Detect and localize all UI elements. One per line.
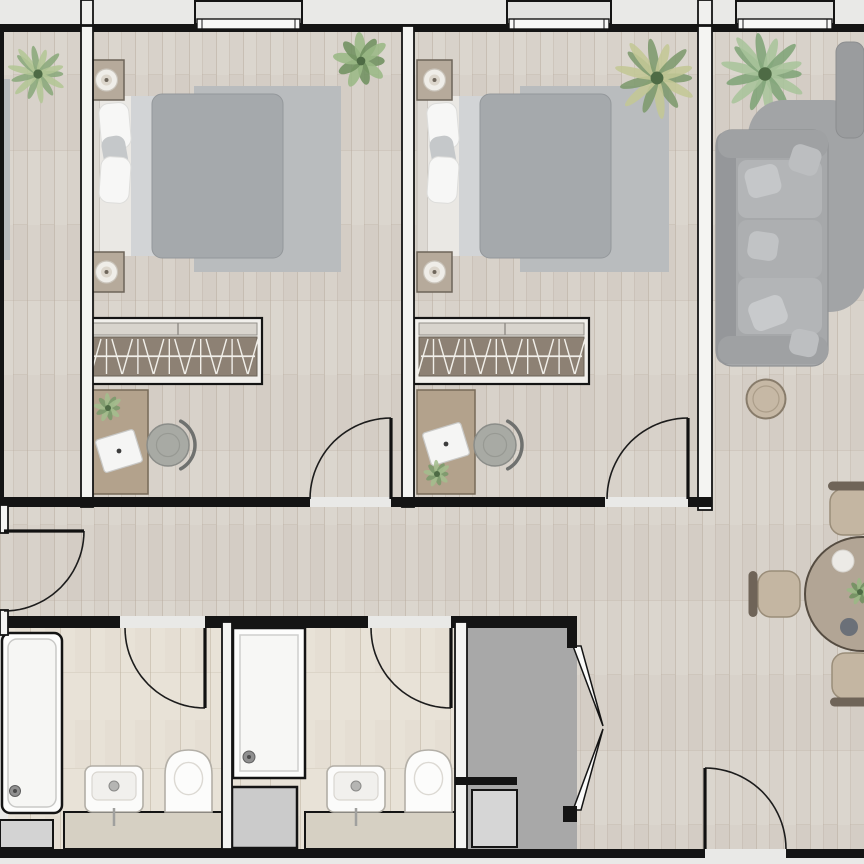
desk-1-plant-core bbox=[105, 405, 111, 411]
shower-head-dot bbox=[247, 755, 251, 759]
lamp-1b-dot bbox=[105, 270, 109, 274]
wall-bedroom1-bottom-right bbox=[391, 497, 414, 507]
bedroom-2-plant-core bbox=[651, 72, 664, 85]
wall-hall-bottom-a bbox=[8, 616, 120, 628]
dining-chair-bottom-backrest bbox=[830, 698, 864, 707]
dining-chair-top bbox=[828, 482, 864, 536]
wall-hall-left-lower bbox=[0, 610, 8, 635]
bathtub-cabinet bbox=[0, 820, 53, 848]
dining-chair-bottom bbox=[830, 653, 864, 707]
window-bedroom-1-sill bbox=[197, 19, 300, 29]
wall-closet-appliance-divider bbox=[455, 777, 517, 785]
laptop-2-logo bbox=[444, 442, 449, 447]
wall-hall-bottom-c bbox=[451, 616, 577, 628]
wall-bedroom2-living bbox=[698, 26, 712, 510]
wall-stub-top-b bbox=[698, 0, 712, 25]
bedroom-1-plant-core bbox=[357, 57, 366, 66]
lamp-2a-dot bbox=[433, 78, 437, 82]
wall-exterior-left bbox=[0, 24, 4, 508]
toilet-1 bbox=[165, 750, 212, 812]
wall-hall-left-upper bbox=[0, 505, 8, 533]
bed-1-duvet bbox=[152, 94, 283, 258]
bedroom-0-plant-core bbox=[33, 69, 42, 78]
wardrobe-2 bbox=[414, 318, 589, 384]
desk-2-plant-core bbox=[434, 471, 440, 477]
sink-2-faucet bbox=[351, 781, 361, 791]
wall-bedroom0-bedroom1 bbox=[81, 26, 93, 507]
wall-closet-stub-top bbox=[567, 618, 577, 648]
side-table bbox=[747, 380, 786, 419]
bed-1-pillow-b bbox=[98, 156, 131, 204]
sofa-chaise-corner bbox=[836, 42, 864, 138]
window-living-room-sill bbox=[738, 19, 832, 29]
floor-plan-svg bbox=[0, 0, 864, 864]
dining-chair-bottom-seat bbox=[832, 653, 864, 699]
wall-bathroom-divider-2 bbox=[455, 622, 467, 849]
wall-bedroom1-bedroom2 bbox=[402, 26, 414, 507]
bathroom-1-counter bbox=[64, 812, 222, 849]
desk-chair-2 bbox=[474, 421, 522, 469]
washing-machine bbox=[232, 787, 297, 848]
desk-chair-1 bbox=[147, 421, 195, 469]
wall-bedroom0-bottom bbox=[0, 497, 81, 507]
closet-appliance bbox=[472, 790, 517, 847]
lamp-2b-dot bbox=[433, 270, 437, 274]
floor-plan-stage bbox=[0, 0, 864, 864]
window-bedroom-1 bbox=[195, 1, 302, 29]
dining-table-plant-core bbox=[857, 589, 863, 595]
sofa-backrest bbox=[716, 132, 736, 364]
wall-exterior-bottom-left bbox=[0, 849, 705, 858]
window-bedroom-2 bbox=[507, 1, 611, 29]
dining-chair-top-backrest bbox=[828, 482, 864, 491]
sofa-pillow-3 bbox=[746, 230, 780, 262]
window-living-room bbox=[736, 1, 834, 29]
wall-closet-stub-bottom bbox=[563, 806, 577, 822]
wall-exterior-bottom-right bbox=[786, 849, 864, 858]
wall-bedroom1-bottom-left bbox=[81, 497, 310, 507]
wall-bedroom2-bottom-right bbox=[688, 497, 712, 507]
lamp-1a-dot bbox=[105, 78, 109, 82]
dining-chair-left bbox=[749, 571, 801, 617]
hallway-floor bbox=[0, 507, 712, 616]
bed-2-headboard bbox=[417, 96, 428, 256]
bathroom-2-counter bbox=[305, 812, 455, 849]
corridor-floor bbox=[577, 616, 712, 849]
dining-bowl bbox=[840, 618, 858, 636]
wall-exterior-top bbox=[0, 24, 864, 32]
wardrobe-2-shelf bbox=[419, 323, 584, 335]
window-bedroom-2-sill bbox=[509, 19, 609, 29]
desk-chair-2-seat bbox=[474, 424, 516, 466]
wardrobe-1-shelf bbox=[92, 323, 257, 335]
bathtub-faucet-dot bbox=[13, 789, 17, 793]
dining-chair-left-seat bbox=[758, 571, 800, 617]
living-room-plant-core bbox=[758, 67, 771, 80]
dining-plate bbox=[832, 550, 854, 572]
desk-chair-1-seat bbox=[147, 424, 189, 466]
dining-chair-left-backrest bbox=[749, 571, 758, 617]
wall-bedroom2-bottom-left bbox=[414, 497, 605, 507]
bathtub-basin bbox=[8, 639, 56, 807]
wall-stub-top-a bbox=[81, 0, 93, 25]
bed-2-duvet bbox=[480, 94, 611, 258]
toilet-2 bbox=[405, 750, 452, 812]
sink-1-faucet bbox=[109, 781, 119, 791]
dining-chair-top-seat bbox=[830, 489, 864, 535]
wall-bathroom-divider-1 bbox=[222, 622, 232, 849]
wardrobe-1 bbox=[87, 318, 262, 384]
bed-2-pillow-b bbox=[426, 156, 459, 204]
laptop-1-logo bbox=[117, 449, 122, 454]
